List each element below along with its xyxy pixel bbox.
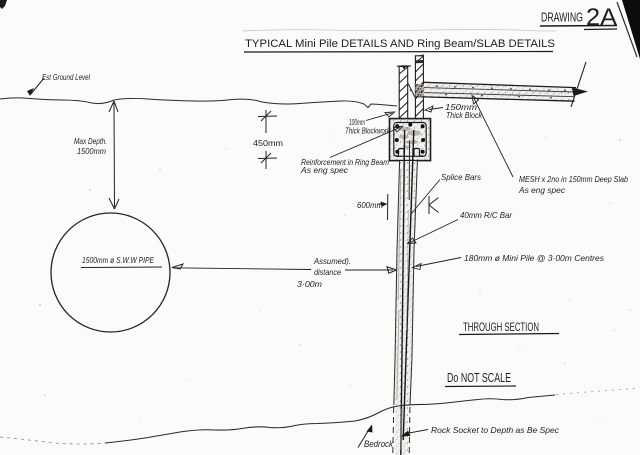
svg-text:MESH x 2no in 150mm Deep Slab: MESH x 2no in 150mm Deep Slab [519,174,628,184]
svg-text:DRAWING: DRAWING [541,11,583,25]
svg-text:600mm: 600mm [357,201,383,210]
svg-text:As eng spec: As eng spec [300,165,349,175]
svg-text:Rock Socket to Depth as Be Spe: Rock Socket to Depth as Be Spec [431,425,560,435]
svg-text:3·00m: 3·00m [297,280,322,289]
svg-text:2A: 2A [586,4,617,31]
svg-text:Do NOT SCALE: Do NOT SCALE [447,371,511,385]
svg-text:Est Ground Level: Est Ground Level [42,73,90,82]
svg-text:Bedrock: Bedrock [364,439,393,449]
svg-text:40mm R/C Bar: 40mm R/C Bar [460,210,513,220]
svg-text:distance: distance [314,268,341,277]
svg-text:1500mm: 1500mm [77,147,106,156]
svg-text:180mm ø Mini Pile @ 3·00m Cent: 180mm ø Mini Pile @ 3·00m Centres [464,253,605,263]
svg-text:Assumed).: Assumed). [313,257,351,266]
svg-text:450mm: 450mm [253,138,283,148]
svg-text:Max Depth.: Max Depth. [74,137,107,146]
svg-text:Thick Block: Thick Block [446,111,483,120]
svg-text:1500mm ø S.W.W PIPE: 1500mm ø S.W.W PIPE [82,256,155,265]
svg-text:TYPICAL Mini Pile DETAILS AND: TYPICAL Mini Pile DETAILS AND Ring Beam/… [245,38,555,50]
svg-text:THROUGH SECTION: THROUGH SECTION [463,320,539,334]
svg-text:Splice Bars: Splice Bars [441,172,482,182]
svg-text:As eng spec: As eng spec [518,185,566,195]
